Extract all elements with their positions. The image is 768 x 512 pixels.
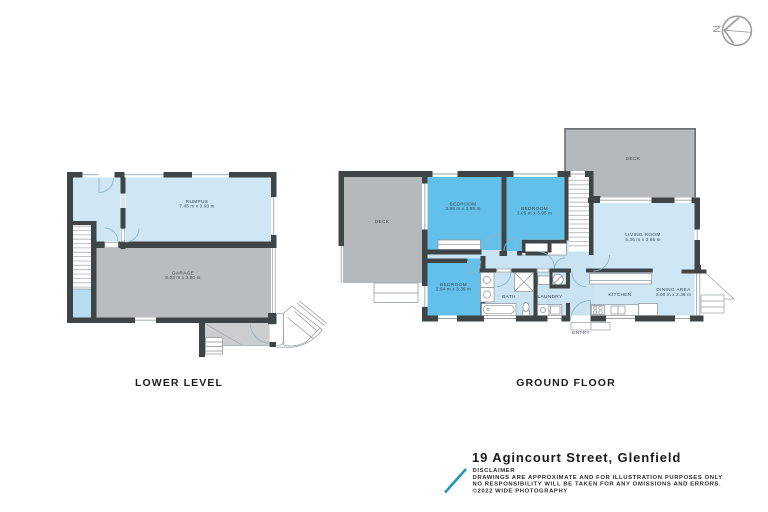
svg-text:ENTRY: ENTRY xyxy=(572,330,590,336)
svg-text:©2022 WIDE PHOTOGRAPHY: ©2022 WIDE PHOTOGRAPHY xyxy=(473,487,568,494)
svg-text:DECK: DECK xyxy=(375,219,390,225)
svg-text:3.00 m x 2.36 m: 3.00 m x 2.36 m xyxy=(656,292,691,297)
svg-text:3.96 m x 3.95 m: 3.96 m x 3.95 m xyxy=(445,206,480,211)
svg-text:LAUNDRY: LAUNDRY xyxy=(538,294,563,300)
svg-text:19 Agincourt Street, Glenfield: 19 Agincourt Street, Glenfield xyxy=(472,450,681,465)
svg-text:GROUND FLOOR: GROUND FLOOR xyxy=(516,377,616,389)
svg-text:8.03 m x 3.80 m: 8.03 m x 3.80 m xyxy=(165,275,200,280)
svg-text:KITCHEN: KITCHEN xyxy=(608,292,631,298)
svg-text:7.45 m x 3.93 m: 7.45 m x 3.93 m xyxy=(179,204,214,209)
svg-text:DECK: DECK xyxy=(626,156,641,162)
svg-text:5.36 m x 3.66 m: 5.36 m x 3.66 m xyxy=(625,237,660,242)
svg-text:BATH: BATH xyxy=(502,294,516,300)
svg-text:2.64 m x 3.36 m: 2.64 m x 3.36 m xyxy=(436,287,471,292)
svg-text:DISCLAIMER: DISCLAIMER xyxy=(473,468,516,474)
svg-text:NO RESPONSIBILITY WILL BE TAKE: NO RESPONSIBILITY WILL BE TAKEN FOR ANY … xyxy=(473,482,722,488)
svg-text:DRAWINGS ARE APPROXIMATE AND F: DRAWINGS ARE APPROXIMATE AND FOR ILLUSTR… xyxy=(473,475,723,481)
svg-text:3.05 m x 3.95 m: 3.05 m x 3.95 m xyxy=(517,210,552,215)
svg-text:N: N xyxy=(710,25,722,33)
svg-text:LOWER LEVEL: LOWER LEVEL xyxy=(135,377,223,389)
